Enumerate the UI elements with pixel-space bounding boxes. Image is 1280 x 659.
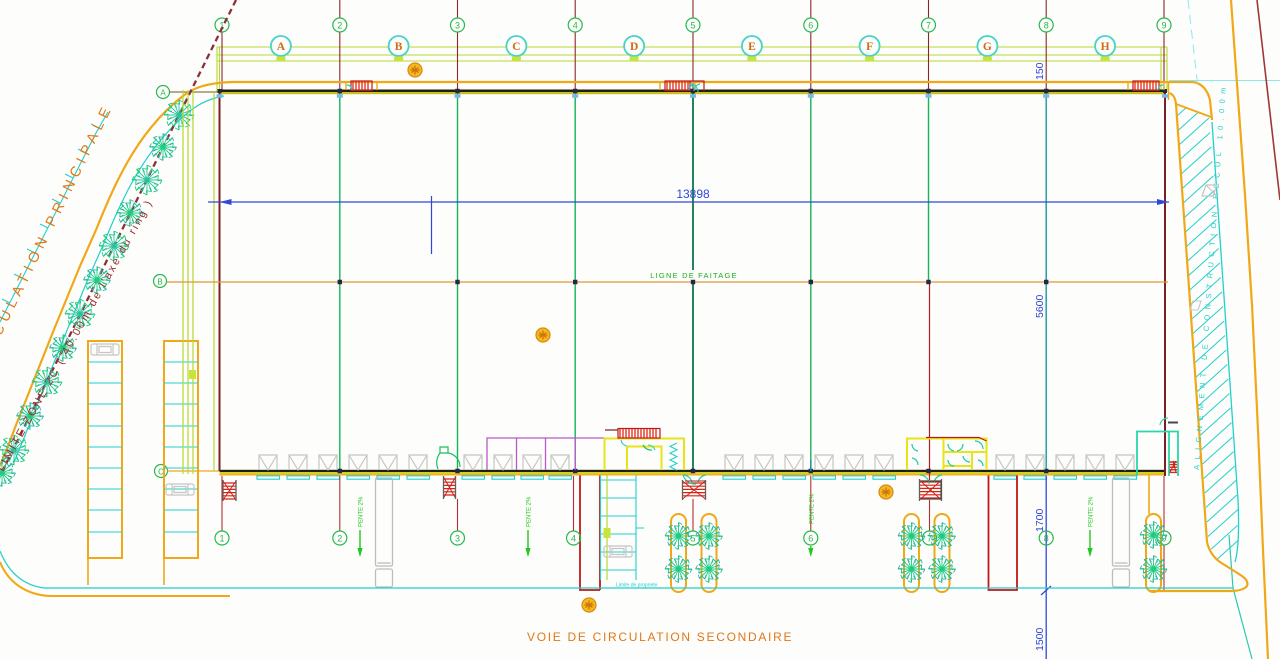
svg-text:5: 5 xyxy=(690,21,695,31)
svg-text:VOIE DE CIRCULATION SECONDAIRE: VOIE DE CIRCULATION SECONDAIRE xyxy=(527,630,793,644)
svg-text:B: B xyxy=(157,278,162,287)
svg-text:3: 3 xyxy=(455,21,460,31)
svg-text:5: 5 xyxy=(690,534,695,544)
svg-text:PENTE 2%: PENTE 2% xyxy=(527,496,533,527)
svg-text:C: C xyxy=(512,41,520,53)
svg-text:8: 8 xyxy=(1044,534,1049,544)
svg-text:6: 6 xyxy=(808,21,813,31)
svg-text:8: 8 xyxy=(1044,21,1049,31)
svg-text:1500: 1500 xyxy=(1034,627,1046,651)
svg-text:D: D xyxy=(630,41,638,53)
svg-text:7: 7 xyxy=(926,21,931,31)
svg-text:LIGNE DE FAITAGE: LIGNE DE FAITAGE xyxy=(650,271,737,280)
svg-text:1700: 1700 xyxy=(1034,508,1046,532)
svg-text:A: A xyxy=(160,89,166,98)
svg-text:150: 150 xyxy=(1034,62,1046,80)
svg-text:G: G xyxy=(983,41,992,53)
svg-text:2: 2 xyxy=(337,534,342,544)
svg-text:9: 9 xyxy=(1161,21,1166,31)
svg-text:H: H xyxy=(1101,41,1110,53)
svg-text:13898: 13898 xyxy=(676,187,710,201)
svg-text:B: B xyxy=(395,41,403,53)
svg-text:F: F xyxy=(866,41,873,53)
svg-text:4: 4 xyxy=(573,21,578,31)
svg-text:5600: 5600 xyxy=(1034,294,1046,318)
svg-text:1: 1 xyxy=(219,534,224,544)
svg-text:PENTE 2%: PENTE 2% xyxy=(1089,496,1095,527)
svg-text:PENTE 2%: PENTE 2% xyxy=(359,496,365,527)
svg-text:PENTE 2%: PENTE 2% xyxy=(810,493,816,524)
svg-text:A: A xyxy=(277,41,286,53)
svg-text:2: 2 xyxy=(337,21,342,31)
svg-text:3: 3 xyxy=(455,534,460,544)
svg-text:E: E xyxy=(748,41,756,53)
svg-text:4: 4 xyxy=(571,534,576,544)
svg-text:6: 6 xyxy=(808,534,813,544)
